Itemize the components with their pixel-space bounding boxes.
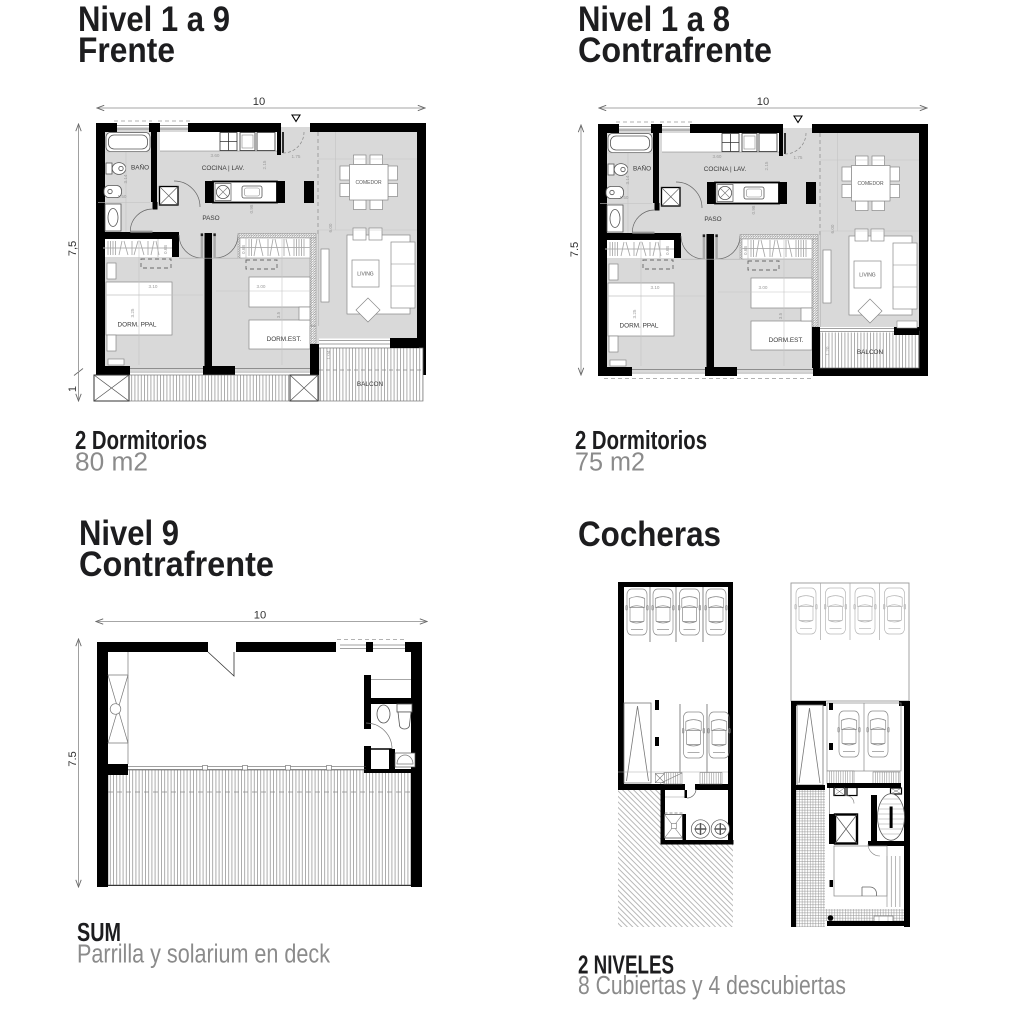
svg-text:Contrafrente: Contrafrente	[578, 31, 772, 70]
svg-text:1: 1	[67, 386, 79, 392]
svg-text:Parrilla y solarium en deck: Parrilla y solarium en deck	[77, 941, 330, 969]
svg-text:1.20: 1.20	[825, 346, 830, 355]
svg-text:10: 10	[757, 96, 769, 108]
svg-text:80 m2: 80 m2	[75, 449, 148, 477]
svg-text:8 Cubiertas y 4 descubiertas: 8 Cubiertas y 4 descubiertas	[578, 972, 846, 1000]
svg-text:7.5: 7.5	[569, 242, 581, 258]
svg-text:75 m2: 75 m2	[575, 449, 645, 477]
svg-text:Frente: Frente	[78, 31, 175, 70]
svg-text:1.04: 1.04	[326, 350, 331, 359]
svg-text:7.5: 7.5	[67, 751, 79, 767]
svg-text:Cocheras: Cocheras	[578, 515, 721, 554]
svg-text:Contrafrente: Contrafrente	[79, 545, 274, 584]
svg-text:7,5: 7,5	[67, 241, 79, 257]
svg-text:BALCON: BALCON	[357, 381, 384, 388]
svg-text:10: 10	[253, 96, 265, 108]
svg-text:BALCON: BALCON	[857, 349, 884, 356]
svg-text:10: 10	[254, 610, 266, 622]
